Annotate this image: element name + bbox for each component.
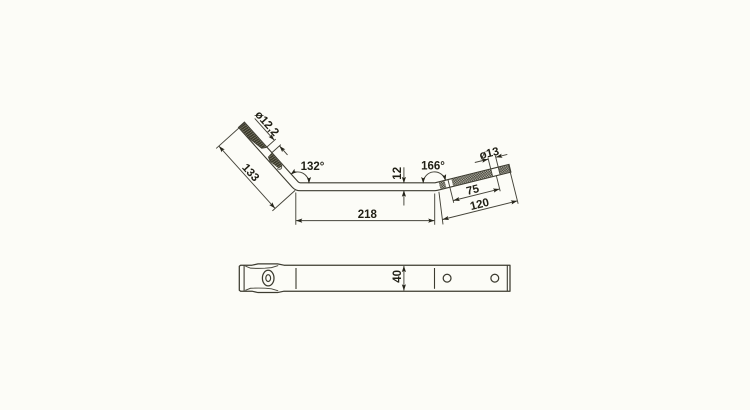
svg-text:12: 12: [392, 167, 404, 180]
svg-text:132°: 132°: [301, 161, 325, 173]
svg-text:166°: 166°: [421, 161, 445, 173]
svg-text:40: 40: [392, 270, 404, 283]
svg-text:218: 218: [358, 209, 378, 221]
